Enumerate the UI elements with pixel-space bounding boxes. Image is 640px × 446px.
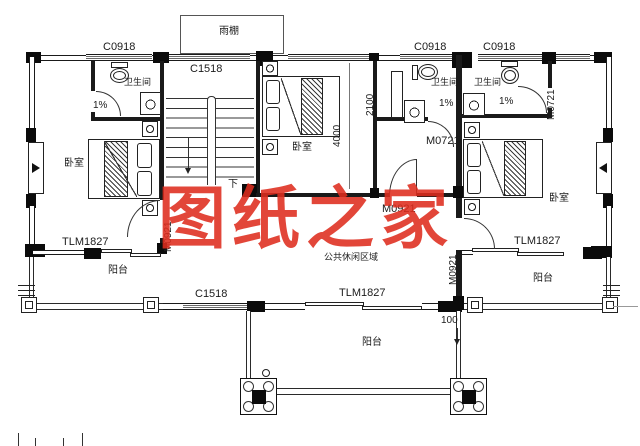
window-mid-bedroom	[288, 54, 370, 61]
label-tlm1827-left: TLM1827	[62, 237, 108, 248]
slide-panel-right-2	[517, 252, 564, 256]
window-c0918-left	[86, 54, 152, 61]
slide-panel-bottom-2	[362, 306, 422, 310]
label-c0918-right: C0918	[483, 42, 515, 53]
stair-arrow-icon	[185, 168, 191, 174]
post-right-b	[602, 297, 618, 313]
dim-100-arrow-icon	[454, 339, 460, 345]
window-c1518-top	[168, 54, 250, 61]
nightstand	[262, 61, 278, 76]
drain-mark	[262, 369, 270, 377]
label-balcony-bottom: 阳台	[362, 338, 382, 348]
toilet-bowl	[501, 67, 519, 84]
nightstand	[262, 139, 278, 155]
bed-right-blanket	[504, 141, 526, 196]
post-right-a	[467, 297, 483, 313]
bed-middle-blanket	[301, 78, 323, 135]
label-m0721-right: M0721	[547, 78, 557, 120]
pillow	[266, 107, 280, 131]
window-marker-left-icon	[32, 163, 40, 173]
nightstand	[142, 121, 158, 137]
label-bedroom-right: 卧室	[549, 194, 569, 204]
label-balcony-right: 阳台	[533, 274, 553, 284]
column-left-1	[26, 128, 36, 142]
label-slope-mid: 1%	[439, 99, 453, 109]
stair-stringer	[207, 96, 216, 185]
post-left-a	[21, 297, 37, 313]
bed-middle-foldline	[281, 78, 301, 135]
label-bathroom-mid: 卫生间	[431, 78, 458, 87]
label-dim-100: 100	[441, 316, 458, 326]
centerline-ext	[613, 306, 638, 307]
column-core	[252, 390, 266, 404]
label-c1518-bottom: C1518	[195, 289, 227, 300]
post-inner	[25, 301, 33, 309]
slide-panel-bottom-1	[305, 302, 364, 306]
slide-panel-left-1	[101, 249, 132, 253]
label-c0918-mid: C0918	[414, 42, 446, 53]
label-dim-4000: 4000	[333, 103, 343, 147]
window-marker-right-icon	[599, 163, 607, 173]
window-right-bedroom	[556, 54, 590, 61]
label-bedroom-left: 卧室	[64, 159, 84, 169]
floor-plan-canvas: 雨棚	[0, 0, 640, 446]
label-tlm1827-bottom: TLM1827	[339, 288, 385, 299]
label-balcony-left: 阳台	[108, 266, 128, 276]
sink	[140, 92, 161, 115]
label-bathroom-left: 卫生间	[124, 78, 151, 87]
label-tlm1827-right: TLM1827	[514, 236, 560, 247]
window-c1518-bottom	[183, 303, 247, 310]
dim-tick	[82, 433, 83, 446]
post-inner	[606, 301, 614, 309]
label-bathroom-right: 卫生间	[474, 78, 501, 87]
window-c0918-mid	[400, 54, 452, 61]
pillow	[137, 171, 152, 196]
decorative-column-left	[240, 378, 277, 415]
dim-tick	[63, 438, 64, 446]
watermark: 图纸之家	[158, 180, 498, 258]
label-slope-left: 1%	[93, 101, 107, 111]
post-left-b	[143, 297, 159, 313]
door-swing-m0921-left	[127, 200, 160, 237]
rail-hatch-left	[18, 285, 35, 297]
label-dim-2100: 2100	[366, 78, 376, 116]
wall-right-1	[606, 57, 612, 130]
pillow	[137, 143, 152, 168]
label-slope-right: 1%	[499, 97, 513, 107]
dim-4000-line	[349, 63, 350, 189]
label-c0918-left: C0918	[103, 42, 135, 53]
rain-canopy-label: 雨棚	[219, 27, 239, 37]
column-right-1	[603, 128, 613, 142]
shower-cabinet	[391, 71, 403, 118]
wall-left-1	[29, 57, 35, 130]
bed-left-foldline	[104, 141, 137, 197]
post-inner	[471, 301, 479, 309]
wall-midbed-left	[256, 61, 260, 196]
door-swing-bath2	[518, 86, 547, 113]
dim-tick	[18, 433, 19, 446]
window-c0918-right	[478, 54, 542, 61]
column-core	[462, 390, 476, 404]
pillow	[467, 143, 481, 167]
label-c1518-top: C1518	[190, 64, 222, 75]
wall-tlm-left-seg	[33, 250, 85, 255]
nightstand	[464, 122, 480, 138]
label-bedroom-middle: 卧室	[292, 143, 312, 153]
column-j7	[583, 247, 602, 259]
label-m0721-mid: M0721	[426, 136, 460, 147]
rail-hatch-right	[603, 285, 620, 297]
stair-direction-line	[188, 138, 189, 170]
sink	[463, 93, 485, 116]
big-balcony-rail-bottom	[249, 388, 458, 395]
decorative-column-right	[450, 378, 487, 415]
dim-tick	[35, 438, 36, 446]
sink	[404, 100, 425, 123]
wall-bottom-1	[163, 303, 183, 310]
column-j6	[84, 248, 101, 259]
post-inner	[147, 301, 155, 309]
pillow	[266, 80, 280, 104]
wall-bathL-left	[91, 61, 95, 91]
balcony-right-bottom-rail	[464, 303, 612, 310]
slide-panel-left-2	[130, 253, 161, 257]
column-top-4	[369, 53, 379, 61]
column-top-5	[452, 52, 472, 68]
